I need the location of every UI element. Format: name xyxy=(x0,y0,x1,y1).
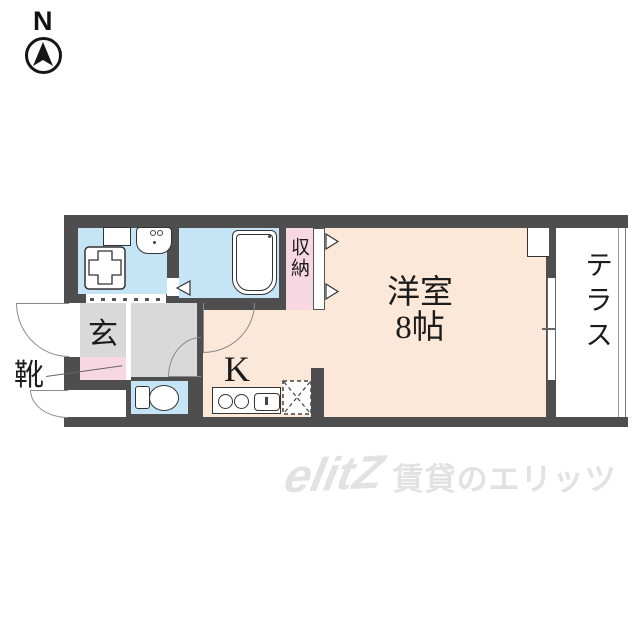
closet-door-arrow-icon xyxy=(325,233,340,250)
terrace-edge-line xyxy=(618,228,619,417)
floorplan-page: N xyxy=(0,0,640,640)
main-room-size: 8帖 xyxy=(350,311,490,346)
porch-door-arc xyxy=(30,390,68,418)
kitchen-counter xyxy=(212,387,281,414)
washroom-counter xyxy=(103,227,131,246)
kitchen-wall-stub xyxy=(311,368,324,417)
faucet-icon xyxy=(265,397,268,405)
kitchen-label: K xyxy=(224,348,250,390)
stove-burner-icon xyxy=(234,394,249,409)
terrace-label: テラス xyxy=(576,250,616,355)
closet-folding-door xyxy=(313,228,325,310)
pipe-space xyxy=(527,228,549,257)
watermark-logo: elitZ xyxy=(281,448,388,500)
entrance-porch xyxy=(64,390,126,417)
shoes-label: 靴 xyxy=(14,350,44,394)
terrace-top-wall xyxy=(556,215,628,228)
bathroom-door-arrow-icon xyxy=(176,280,192,296)
closet-label: 収納 xyxy=(288,237,312,279)
compass-north-label: N xyxy=(33,6,53,37)
watermark-text: 賃貸のエリッツ xyxy=(393,463,617,497)
main-room-name: 洋室 xyxy=(350,276,490,311)
toilet-bowl xyxy=(149,385,179,411)
watermark: elitZ 賃貸のエリッツ xyxy=(286,450,617,497)
main-room-label: 洋室 8帖 xyxy=(350,276,490,345)
wash-basin xyxy=(136,227,172,254)
toilet-tank xyxy=(135,386,150,409)
terrace-bottom-wall xyxy=(556,417,628,427)
refrigerator-space xyxy=(282,380,312,415)
stove-burner-icon xyxy=(218,394,233,409)
north-arrow-icon xyxy=(25,37,62,74)
entrance-label: 玄 xyxy=(80,309,126,353)
bathtub xyxy=(232,230,277,295)
closet-door-arrow-icon xyxy=(325,283,340,300)
entrance-door-arc xyxy=(16,303,69,357)
washing-machine-pan xyxy=(84,246,126,290)
sliding-door-dots xyxy=(90,298,162,301)
